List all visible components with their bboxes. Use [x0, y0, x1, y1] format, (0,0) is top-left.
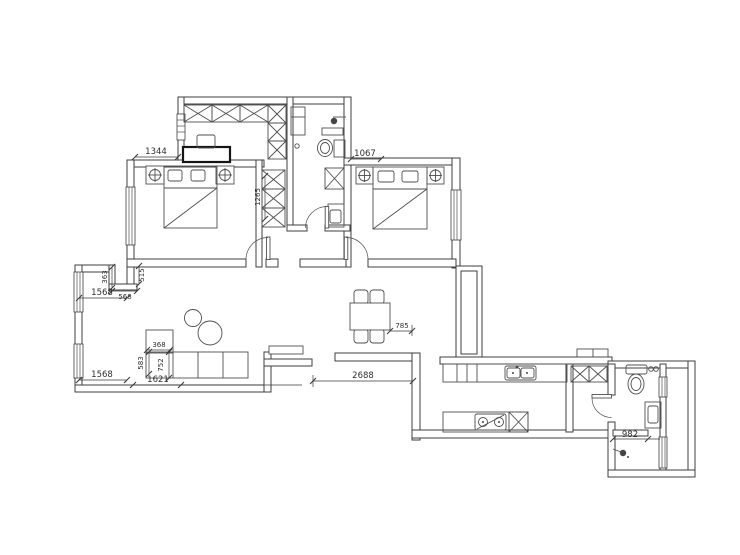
- toilet-icon: [626, 365, 647, 394]
- bathroom-bottom: [613, 365, 661, 458]
- dim-hall-span: 2688: [310, 371, 416, 387]
- dim-bedroom1-width: 1344: [132, 147, 181, 160]
- dim-label: 1067: [354, 149, 376, 159]
- dim-chaise-width: 368: [144, 341, 173, 353]
- shelf-icon: [322, 128, 343, 135]
- cabinet-icon: [509, 412, 528, 432]
- dim-label: 752: [157, 358, 165, 371]
- washbasin-icon: [328, 204, 344, 227]
- cabinet-icon: [589, 366, 607, 382]
- dim-label: 583: [137, 356, 145, 369]
- dim-label: 1344: [145, 147, 167, 157]
- dim-label: 368: [152, 341, 165, 349]
- cabinet-icon: [577, 349, 608, 357]
- dim-label: 982: [622, 430, 638, 440]
- double-bed-icon: [373, 167, 427, 229]
- kitchen: [443, 364, 567, 432]
- bathroom-top: [291, 107, 346, 228]
- dim-label: 2688: [352, 371, 374, 381]
- cabinet-icon: [571, 366, 589, 382]
- window-icon: [74, 272, 83, 312]
- door-arc-icon: [592, 395, 612, 418]
- dim-label: 1621: [147, 375, 169, 385]
- dim-label: 1265: [254, 188, 262, 206]
- dim-label: 1568: [91, 288, 113, 298]
- floor-plan: 1344 1067 1265 363 515 568 1568 368: [0, 0, 740, 555]
- coffee-table-icon: [185, 310, 223, 346]
- washbasin-icon: [645, 402, 661, 428]
- toilet-icon: [318, 140, 346, 158]
- walls: [75, 97, 695, 477]
- counter-icon: [443, 412, 528, 432]
- door-arc-icon: [306, 207, 329, 229]
- dining-table-icon: [350, 290, 390, 343]
- window-icon: [451, 190, 461, 240]
- desk-icon: [183, 147, 230, 162]
- floor-drain-icon: [295, 144, 299, 148]
- window-icon: [659, 377, 667, 397]
- bedroom-2: [344, 167, 444, 260]
- stove-icon: [475, 414, 506, 430]
- tv-cabinet-icon: [269, 346, 303, 354]
- double-bed-icon: [164, 166, 217, 228]
- kitchen-sink-icon: [505, 366, 536, 380]
- dim-west-window: 1568: [76, 370, 130, 383]
- dim-label: 363: [101, 270, 109, 283]
- dim-label: 515: [138, 268, 146, 281]
- window-icon: [126, 187, 135, 245]
- cabinet-icon: [325, 168, 344, 189]
- dim-label: 785: [395, 322, 408, 330]
- window-icon: [74, 344, 83, 378]
- door-arc-icon: [344, 237, 368, 260]
- dim-table-side: 785: [387, 322, 415, 336]
- window-icon: [659, 437, 667, 468]
- dim-label: 1568: [91, 370, 113, 380]
